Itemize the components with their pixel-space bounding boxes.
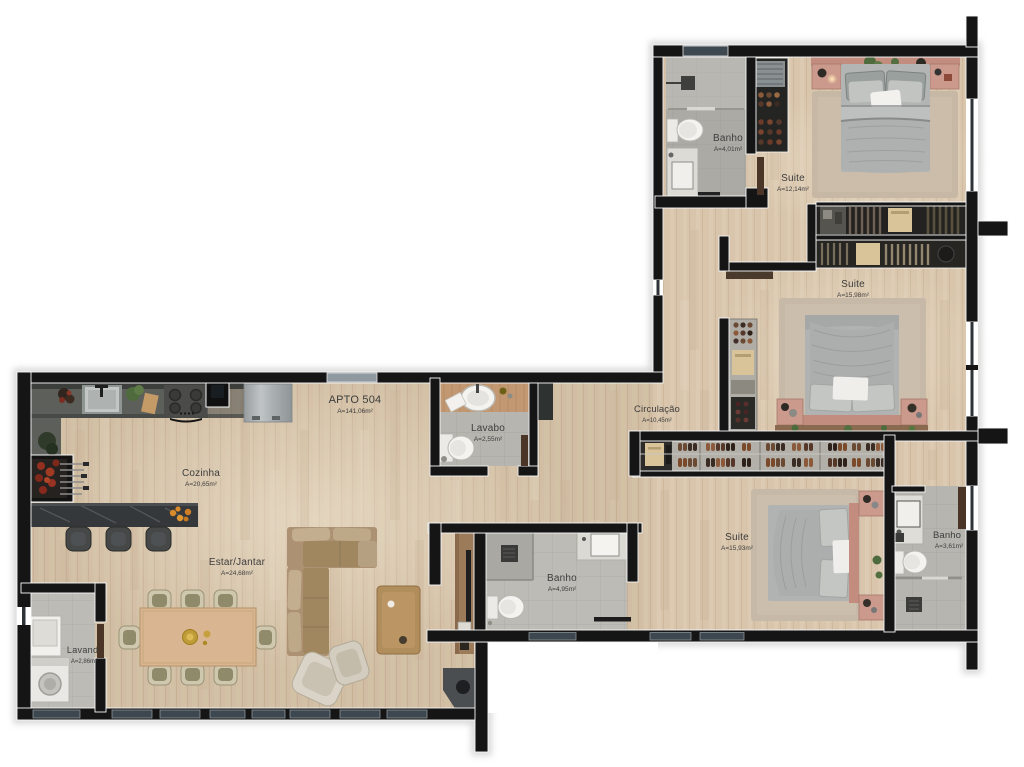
svg-text:Banho: Banho — [713, 133, 743, 144]
svg-text:A=2,55m²: A=2,55m² — [474, 436, 503, 443]
svg-text:A=10,45m²: A=10,45m² — [642, 418, 672, 424]
svg-text:Banho: Banho — [547, 573, 577, 584]
svg-text:Suite: Suite — [781, 173, 805, 184]
svg-text:A=2,86m²: A=2,86m² — [71, 659, 97, 665]
svg-text:A=12,14m²: A=12,14m² — [777, 186, 810, 193]
svg-text:APTO 504: APTO 504 — [329, 394, 382, 406]
svg-text:Suite: Suite — [841, 279, 865, 290]
svg-text:Lavabo: Lavabo — [471, 423, 505, 434]
svg-text:Estar/Jantar: Estar/Jantar — [209, 557, 266, 568]
svg-text:A=3,61m²: A=3,61m² — [935, 543, 964, 550]
svg-text:Lavand.: Lavand. — [67, 645, 101, 655]
svg-text:A=24,68m²: A=24,68m² — [221, 570, 254, 577]
svg-text:A=141,06m²: A=141,06m² — [337, 408, 373, 415]
svg-text:A=4,01m²: A=4,01m² — [714, 146, 743, 153]
svg-text:Suite: Suite — [725, 532, 749, 543]
svg-text:A=20,65m²: A=20,65m² — [185, 481, 218, 488]
svg-text:A=4,95m²: A=4,95m² — [548, 586, 577, 593]
svg-text:Banho: Banho — [933, 530, 961, 541]
svg-text:Cozinha: Cozinha — [182, 468, 220, 479]
svg-text:A=15,93m²: A=15,93m² — [721, 545, 754, 552]
svg-text:Circulação: Circulação — [634, 404, 680, 415]
svg-text:A=15,98m²: A=15,98m² — [837, 292, 870, 299]
